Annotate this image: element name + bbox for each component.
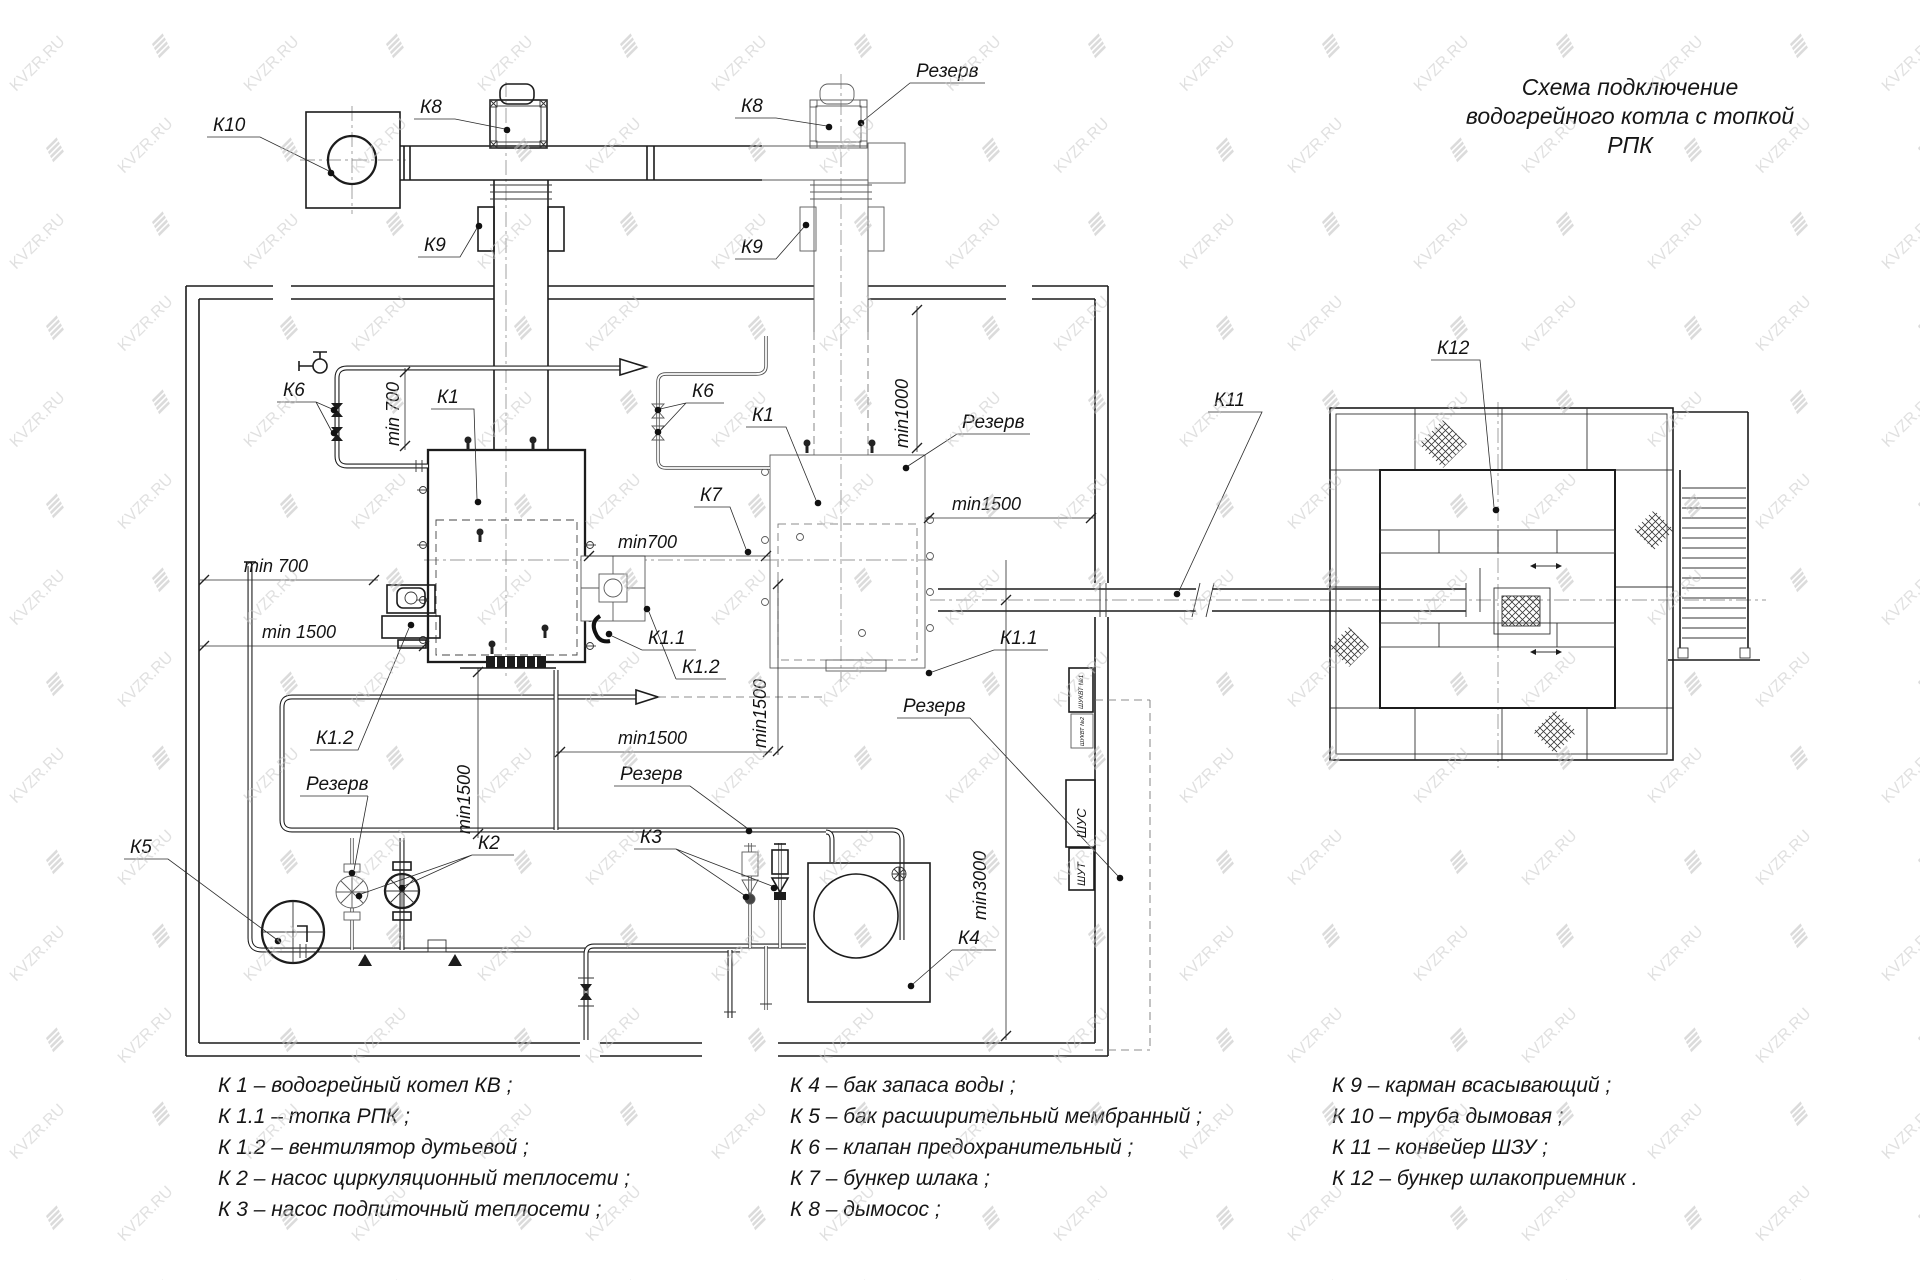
callout-reserve-k2: Резерв	[306, 774, 369, 795]
callout-k5: К5	[130, 837, 152, 858]
callout-reserve-boiler2: Резерв	[962, 412, 1025, 433]
dim-min1500-left: min 1500	[262, 622, 336, 642]
expansion-tank-k5	[262, 901, 324, 963]
dim-min1500-vert2: min1500	[750, 679, 770, 748]
callout-k9: К9	[424, 235, 446, 256]
callout-k1-1-reserve: К1.1	[1000, 628, 1038, 649]
callout-k8: К8	[420, 97, 442, 118]
legend-item: К 12 – бункер шлакоприемник .	[1332, 1167, 1638, 1190]
dim-min1000: min1000	[892, 379, 912, 448]
dim-min1500-vert1: min1500	[454, 765, 474, 834]
legend-item: К 1.1 – топка РПК ;	[218, 1105, 410, 1128]
title-line2: водогрейного котла с топкой	[1466, 103, 1795, 129]
legend-item: К 1 – водогрейный котел КВ ;	[218, 1074, 513, 1097]
dim-min1500-right: min1500	[952, 494, 1021, 514]
legend-item: К 6 – клапан предохранительный ;	[790, 1136, 1134, 1159]
legend-item: К 10 – труба дымовая ;	[1332, 1105, 1564, 1128]
callout-k2: К2	[478, 833, 500, 854]
drawing-sheet: KVZR.RU KVZR.RU	[0, 0, 1920, 1280]
legend-item: К 9 – карман всасывающий ;	[1332, 1074, 1611, 1097]
dim-min1500-bottom: min1500	[618, 728, 687, 748]
legend-item: К 1.2 – вентилятор дутьевой ;	[218, 1136, 529, 1159]
callout-k1-reserve: К1	[752, 405, 774, 426]
callout-k9-reserve: К9	[741, 237, 763, 258]
blower-fan-k1-2-reserve	[581, 556, 645, 621]
dim-min700-vertical: min 700	[383, 382, 403, 446]
legend-item: К 3 – насос подпиточный теплосети ;	[218, 1198, 602, 1221]
callout-k4: К4	[958, 928, 980, 949]
title-line1: Схема подключение	[1522, 74, 1739, 100]
cabinet-shukvt2-label: ШУКВТ №2	[1080, 717, 1086, 746]
dim-min700-left: min 700	[244, 556, 308, 576]
piping-diagram-svg: KVZR.RU KVZR.RU	[0, 0, 1920, 1280]
callout-k1: К1	[437, 387, 459, 408]
legend-item: К 11 – конвейер ШЗУ ;	[1332, 1136, 1548, 1159]
dim-min3000: min3000	[970, 851, 990, 920]
callout-k10: К10	[213, 115, 246, 136]
legend-item: К 4 – бак запаса воды ;	[790, 1074, 1016, 1097]
legend-item: К 5 – бак расширительный мембранный ;	[790, 1105, 1202, 1128]
legend-item: К 7 – бункер шлака ;	[790, 1167, 990, 1190]
cabinet-shut-label: ШУТ	[1076, 861, 1088, 886]
callout-k1-2-left: К1.2	[316, 728, 354, 749]
legend-item: К 8 – дымосос ;	[790, 1198, 941, 1221]
callout-k3: К3	[640, 827, 662, 848]
dim-min700-center: min700	[618, 532, 677, 552]
callout-k6-reserve: К6	[692, 381, 714, 402]
callout-reserve-top: Резерв	[916, 61, 979, 82]
callout-k8-reserve: К8	[741, 96, 763, 117]
callout-reserve-right: Резерв	[903, 696, 966, 717]
callout-reserve-k3: Резерв	[620, 764, 683, 785]
callout-k7: К7	[700, 485, 723, 506]
cabinet-shus-label: ШУС	[1074, 808, 1089, 838]
callout-k12: К12	[1437, 338, 1470, 359]
cabinet-shukvt1-label: ШУКВТ №1	[1078, 674, 1085, 709]
legend-item: К 2 – насос циркуляционный теплосети ;	[218, 1167, 630, 1190]
callout-k6: К6	[283, 380, 305, 401]
callout-k1-2: К1.2	[682, 657, 720, 678]
callout-k11: К11	[1214, 390, 1245, 411]
callout-k1-1: К1.1	[648, 628, 686, 649]
title-line3: РПК	[1607, 132, 1654, 158]
